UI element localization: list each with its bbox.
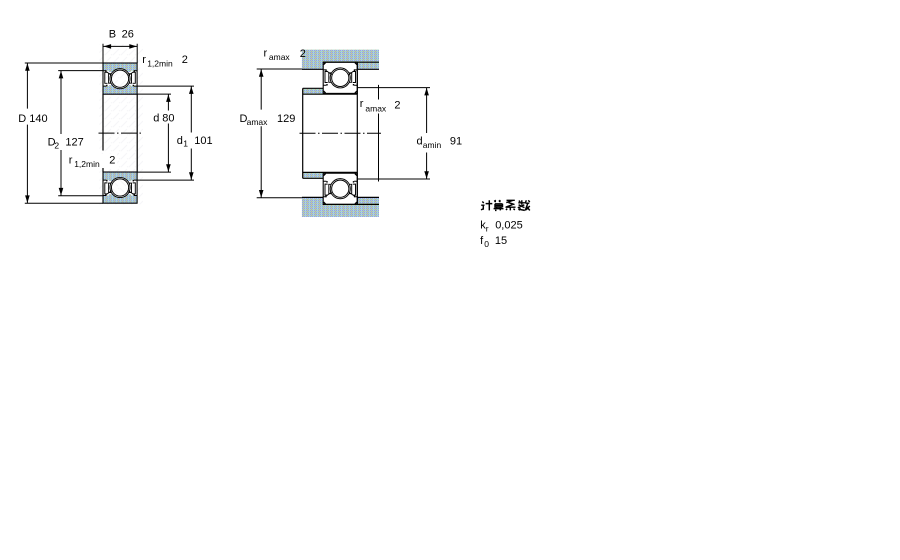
svg-text:80: 80 xyxy=(162,112,174,124)
svg-text:0: 0 xyxy=(484,239,489,249)
svg-text:d: d xyxy=(417,135,423,147)
svg-text:amax: amax xyxy=(269,52,291,62)
svg-text:2: 2 xyxy=(182,54,188,66)
svg-text:26: 26 xyxy=(122,29,134,41)
svg-text:91: 91 xyxy=(450,135,462,147)
svg-text:r: r xyxy=(264,47,268,59)
svg-text:0,025: 0,025 xyxy=(495,220,523,232)
svg-text:2: 2 xyxy=(54,140,59,150)
svg-text:140: 140 xyxy=(29,113,47,125)
svg-text:2: 2 xyxy=(394,99,400,111)
svg-text:amin: amin xyxy=(423,140,442,150)
svg-text:127: 127 xyxy=(65,137,83,149)
svg-text:r: r xyxy=(486,223,489,233)
svg-text:d: d xyxy=(177,135,183,147)
svg-text:2: 2 xyxy=(109,155,115,167)
svg-text:1,2min: 1,2min xyxy=(74,159,100,169)
svg-text:101: 101 xyxy=(194,135,212,147)
svg-text:r: r xyxy=(69,154,73,166)
svg-text:r: r xyxy=(360,98,364,110)
svg-text:D: D xyxy=(18,113,26,125)
svg-text:129: 129 xyxy=(277,113,295,125)
svg-text:2: 2 xyxy=(300,48,306,60)
svg-text:amax: amax xyxy=(365,103,387,113)
svg-text:amax: amax xyxy=(247,117,269,127)
svg-text:1: 1 xyxy=(183,139,188,149)
svg-text:B: B xyxy=(109,29,116,41)
svg-text:r: r xyxy=(142,54,146,66)
svg-text:15: 15 xyxy=(495,235,507,247)
svg-text:1,2min: 1,2min xyxy=(147,59,173,69)
svg-text:d: d xyxy=(153,112,159,124)
